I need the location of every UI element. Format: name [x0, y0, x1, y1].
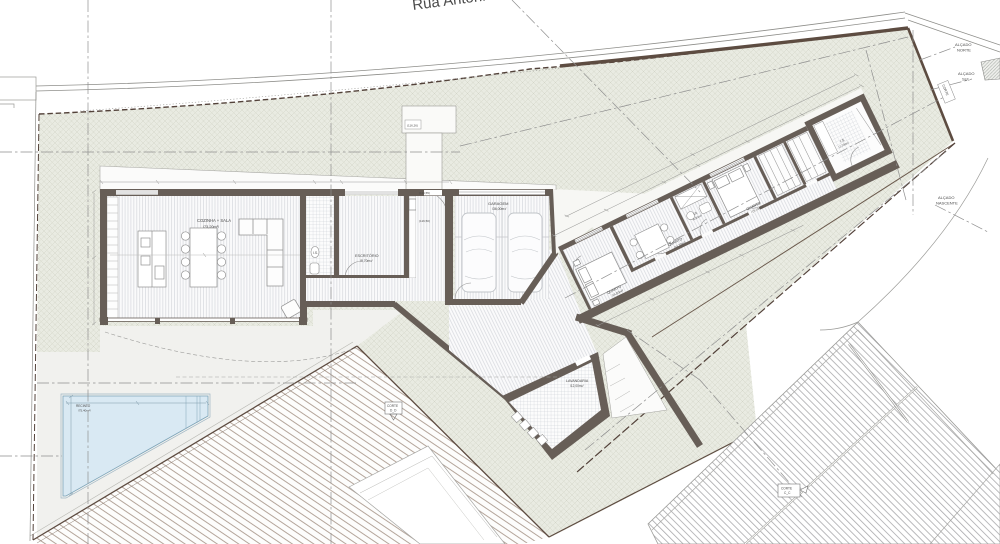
svg-text:/12,00m²/: /12,00m²/ [570, 384, 584, 388]
svg-text:/36,00m²/: /36,00m²/ [492, 207, 506, 211]
svg-text:C_C: C_C [784, 491, 791, 495]
svg-text:CORTE: CORTE [781, 487, 792, 491]
svg-text:/75,40m²/: /75,40m²/ [78, 409, 91, 413]
svg-text:GARAGEM: GARAGEM [488, 201, 508, 206]
svg-text:(116,50): (116,50) [419, 219, 430, 223]
svg-text:NORTE: NORTE [957, 48, 971, 53]
svg-text:RECINTO: RECINTO [76, 404, 91, 408]
svg-text:CORTE: CORTE [387, 404, 398, 408]
svg-text:(116,26): (116,26) [407, 124, 418, 128]
svg-text:ESCRITÓRIO: ESCRITÓRIO [355, 253, 379, 258]
svg-text:ALÇADO: ALÇADO [958, 71, 974, 76]
svg-text:NASCENTE: NASCENTE [936, 201, 958, 206]
svg-text:D_D: D_D [390, 409, 397, 413]
svg-text:/73,20m²/: /73,20m²/ [203, 225, 220, 229]
svg-text:LAVANDARIA: LAVANDARIA [566, 379, 589, 383]
svg-text:I.S.: I.S. [313, 251, 318, 255]
svg-text:SUL: SUL [962, 77, 971, 82]
svg-text:(116,55): (116,55) [419, 191, 430, 195]
svg-text:ALÇADO: ALÇADO [955, 42, 971, 47]
svg-text:ALÇADO: ALÇADO [938, 195, 954, 200]
svg-text:COZINHA + SALA: COZINHA + SALA [197, 218, 231, 223]
